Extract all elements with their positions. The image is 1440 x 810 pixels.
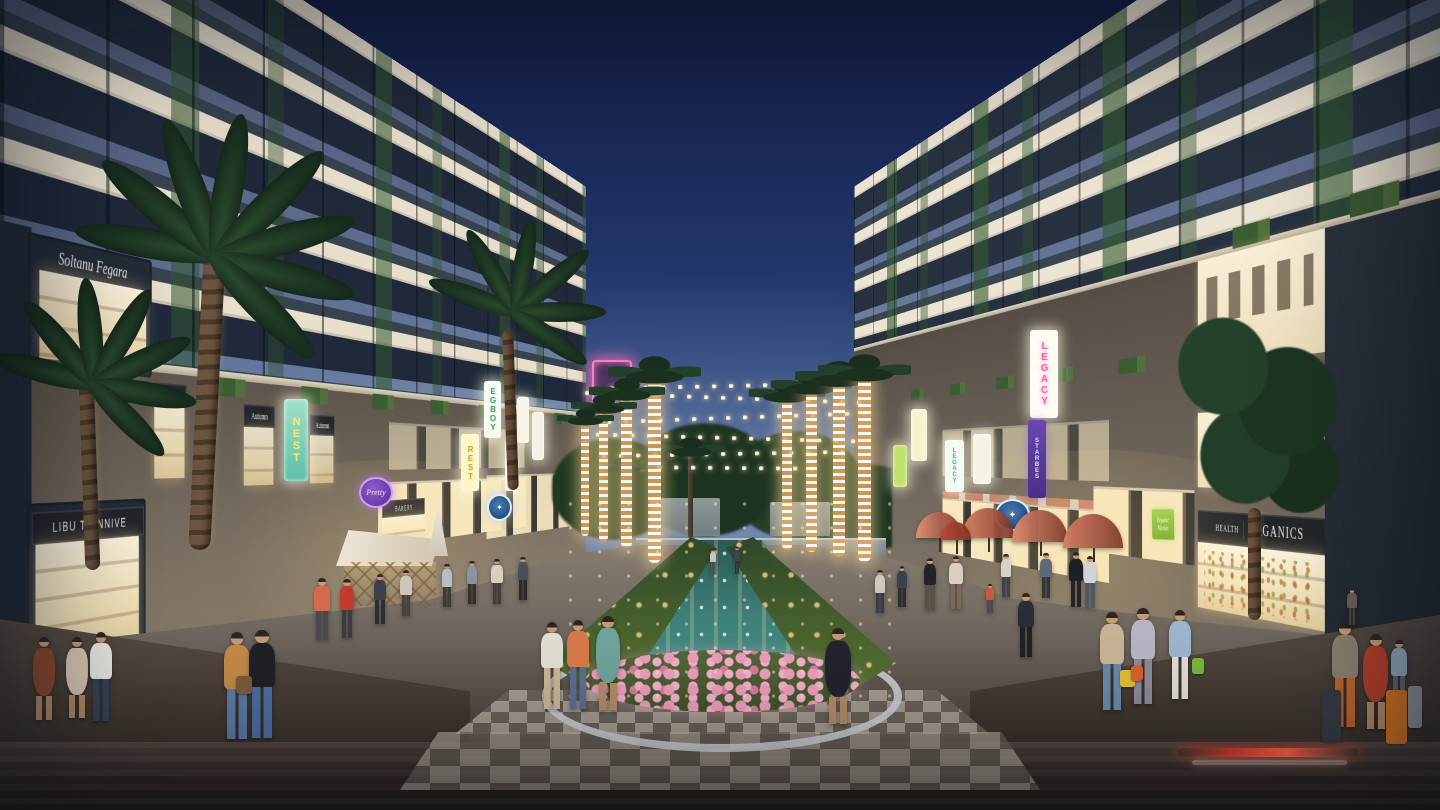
light-wrapped-palm [858, 376, 871, 562]
yellow-banner-sign [911, 409, 927, 461]
distant-building-2 [770, 502, 830, 536]
person-torso [1084, 562, 1097, 583]
pedestrian [818, 628, 859, 741]
person-torso [340, 586, 355, 610]
legacy-teal-label: LEGACY [952, 448, 958, 484]
pedestrian [370, 574, 390, 630]
left-corner-wall [0, 220, 32, 690]
person-torso [734, 550, 741, 561]
green-banner-sign [893, 445, 907, 487]
person-legs [1349, 608, 1356, 626]
rest-neon-label: REST [466, 445, 474, 481]
person-head [494, 559, 499, 564]
person-head [927, 558, 933, 564]
person-legs [951, 584, 961, 609]
person-torso [596, 628, 621, 683]
person-legs [36, 696, 52, 719]
pedestrian [945, 556, 967, 616]
light-wrapped-palm [581, 422, 589, 536]
person-legs [342, 610, 353, 638]
shopping-bag [1408, 686, 1422, 728]
person-legs [375, 600, 384, 624]
person-torso [710, 552, 716, 562]
person-legs [316, 611, 328, 640]
egboy-neon-sign: EGBOY [484, 381, 501, 438]
white-banner-sign-1 [517, 397, 529, 443]
person-torso [1332, 635, 1358, 677]
person-legs [468, 584, 476, 604]
person-head [573, 620, 584, 631]
person-head [1175, 610, 1186, 621]
person-torso [249, 643, 276, 687]
person-legs [402, 595, 411, 617]
person-torso [1391, 648, 1408, 675]
person-torso [90, 643, 112, 679]
pedestrian [27, 637, 62, 734]
car-taillight-streak [1178, 748, 1358, 757]
person-head [1137, 608, 1149, 620]
person-torso [1100, 624, 1125, 664]
shopping-bag [1131, 666, 1143, 681]
person-head [602, 616, 614, 628]
person-torso [33, 648, 55, 697]
pedestrian [920, 558, 941, 616]
autumn-window-3 [310, 435, 333, 483]
cafe-badge-left: ✦ [487, 494, 512, 521]
person-head [1073, 552, 1080, 559]
shopping-bag [1386, 690, 1407, 744]
person-head [832, 628, 844, 640]
distant-palm-canopy [658, 436, 724, 462]
person-legs [829, 697, 848, 724]
person-head [1370, 634, 1382, 646]
person-legs [443, 587, 451, 607]
person-head [39, 637, 49, 647]
shopping-bag [236, 676, 252, 694]
person-legs [1367, 702, 1386, 729]
person-torso [400, 576, 412, 595]
light-wrapped-palm [833, 382, 845, 557]
pedestrian [309, 578, 334, 648]
palm-canopy [557, 407, 614, 430]
legacy-teal-sign: LEGACY [945, 440, 964, 492]
white-banner-sign-2 [532, 412, 544, 460]
pedestrian [708, 549, 718, 577]
pedestrian [397, 570, 416, 622]
twilight-promenade-render: Soltanu Fegara LIBU TIONNIVE Autumn Autu… [0, 0, 1440, 810]
person-head [1043, 553, 1048, 558]
person-torso [491, 565, 502, 583]
person-legs [876, 593, 884, 613]
autumn-sign-3: Autumn [310, 414, 335, 436]
person-head [1022, 593, 1030, 601]
person-legs [1020, 627, 1032, 657]
person-head [255, 630, 268, 643]
person-legs [493, 583, 501, 604]
pedestrian [1080, 556, 1101, 614]
person-head [953, 556, 959, 562]
light-wrapped-palm [782, 398, 792, 550]
person-torso [442, 569, 453, 586]
person-legs [711, 562, 716, 574]
person-torso [825, 641, 850, 698]
person-head [343, 579, 350, 586]
person-legs [898, 588, 906, 607]
person-torso [518, 562, 529, 579]
rest-neon-sign: REST [461, 434, 479, 491]
person-torso [567, 631, 589, 667]
person-torso [986, 588, 993, 600]
pedestrian [335, 579, 359, 645]
person-legs [519, 580, 527, 600]
shopping-bag [1192, 658, 1204, 674]
pedestrian [997, 554, 1014, 602]
pedestrian [894, 566, 911, 612]
person-head [1350, 588, 1355, 593]
person-legs [599, 683, 617, 709]
person-legs [1172, 657, 1189, 699]
person-legs [1085, 583, 1095, 607]
street-tree-trunk [1248, 508, 1261, 620]
person-torso [924, 564, 937, 585]
person-legs [1103, 664, 1121, 710]
pretty-badge-sign: Pretty [359, 477, 393, 508]
person-head [403, 570, 409, 576]
pedestrian [871, 570, 888, 618]
pedestrian [588, 616, 628, 726]
pedestrian [438, 564, 455, 612]
person-legs [987, 600, 992, 614]
pedestrian [488, 559, 506, 609]
person-legs [544, 668, 560, 709]
right-upper-shop-strip [943, 420, 1109, 482]
person-torso [897, 571, 907, 588]
person-torso [1347, 593, 1356, 608]
person-legs [570, 667, 587, 709]
person-legs [93, 679, 110, 721]
legacy-neon-label: LEGACY [1039, 341, 1049, 407]
pedestrian [1124, 608, 1163, 716]
person-torso [314, 586, 330, 611]
street-tree-canopy [1168, 296, 1352, 530]
person-torso [1040, 559, 1051, 577]
pedestrian [732, 547, 743, 577]
legacy-neon-sign: LEGACY [1030, 330, 1058, 418]
palm-canopy [818, 352, 911, 389]
person-torso [1131, 620, 1155, 659]
starbes-purple-sign: STARBES [1028, 420, 1046, 498]
white-banner-sign-3 [973, 434, 991, 484]
pedestrian [1344, 588, 1359, 630]
pedestrian [514, 557, 531, 605]
person-torso [467, 566, 478, 583]
person-head [96, 632, 107, 643]
pedestrian [1037, 553, 1055, 603]
shopping-bag [1322, 690, 1341, 742]
person-head [547, 622, 558, 633]
pedestrian [83, 632, 119, 732]
person-head [318, 578, 326, 586]
car-light-streak [1192, 760, 1347, 765]
person-torso [1169, 621, 1191, 657]
egboy-neon-label: EGBOY [489, 387, 497, 432]
person-torso [949, 563, 962, 585]
nest-neon-sign: NEST [284, 399, 308, 481]
person-legs [1042, 577, 1050, 598]
person-legs [252, 687, 272, 738]
starbes-purple-label: STARBES [1034, 438, 1040, 480]
pedestrian [1013, 593, 1039, 665]
autumn-sign-2: Autumn [244, 404, 275, 428]
person-head [377, 574, 383, 580]
person-head [72, 637, 82, 647]
person-torso [374, 580, 386, 600]
person-torso [875, 575, 886, 592]
person-torso [1018, 601, 1034, 627]
pedestrian [984, 584, 996, 617]
person-legs [925, 585, 935, 609]
nest-neon-label: NEST [291, 416, 302, 464]
person-head [1087, 556, 1093, 562]
pedestrian [463, 561, 480, 609]
person-legs [735, 561, 740, 574]
person-legs [1002, 577, 1010, 597]
person-head [1106, 612, 1118, 624]
person-head [1395, 640, 1403, 648]
person-torso [1001, 559, 1012, 576]
pretty-badge-label: Pretty [366, 488, 385, 497]
light-wrapped-palm [806, 390, 817, 552]
autumn-window-2 [244, 427, 274, 486]
